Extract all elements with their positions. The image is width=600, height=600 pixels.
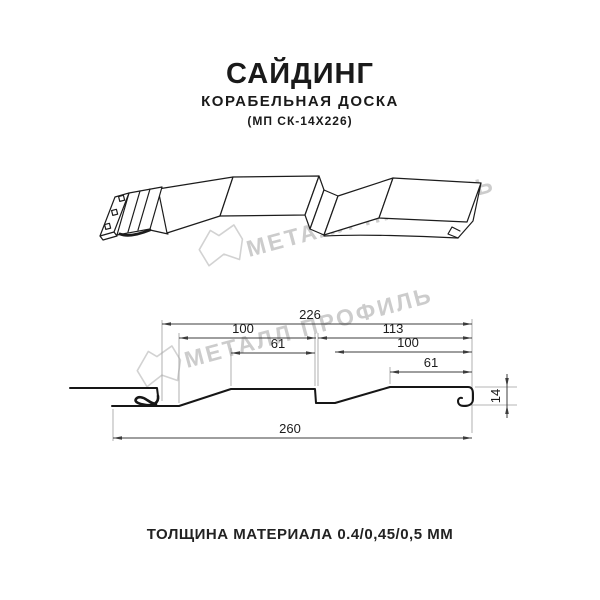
dim-label-board1-width: 100 (232, 321, 254, 336)
product-drawing-page: САЙДИНГ КОРАБЕЛЬНАЯ ДОСКА (МП СК-14Х226)… (0, 0, 600, 600)
material-thickness-note: ТОЛЩИНА МАТЕРИАЛА 0.4/0,45/0,5 ММ (0, 526, 600, 543)
dim-label-profile-height: 14 (488, 389, 503, 403)
dimension-14: 14 (488, 374, 509, 418)
dimension-260: 260 (113, 421, 472, 440)
dimension-61-right: 61 (390, 355, 472, 374)
dim-label-overall-width: 260 (279, 421, 301, 436)
dim-label-cover-width: 226 (299, 307, 321, 322)
brand-watermark-logo (135, 345, 183, 387)
dim-label-board1-flat: 61 (271, 336, 285, 351)
dim-label-board2-width: 100 (397, 335, 419, 350)
brand-watermark-logo (197, 224, 245, 266)
dim-label-board2-span: 113 (383, 321, 404, 336)
panel-cross-section (70, 387, 473, 406)
technical-drawing-canvas: МЕТАЛЛ ПРОФИЛЬ (0, 0, 600, 600)
dim-label-board2-flat: 61 (424, 355, 438, 370)
